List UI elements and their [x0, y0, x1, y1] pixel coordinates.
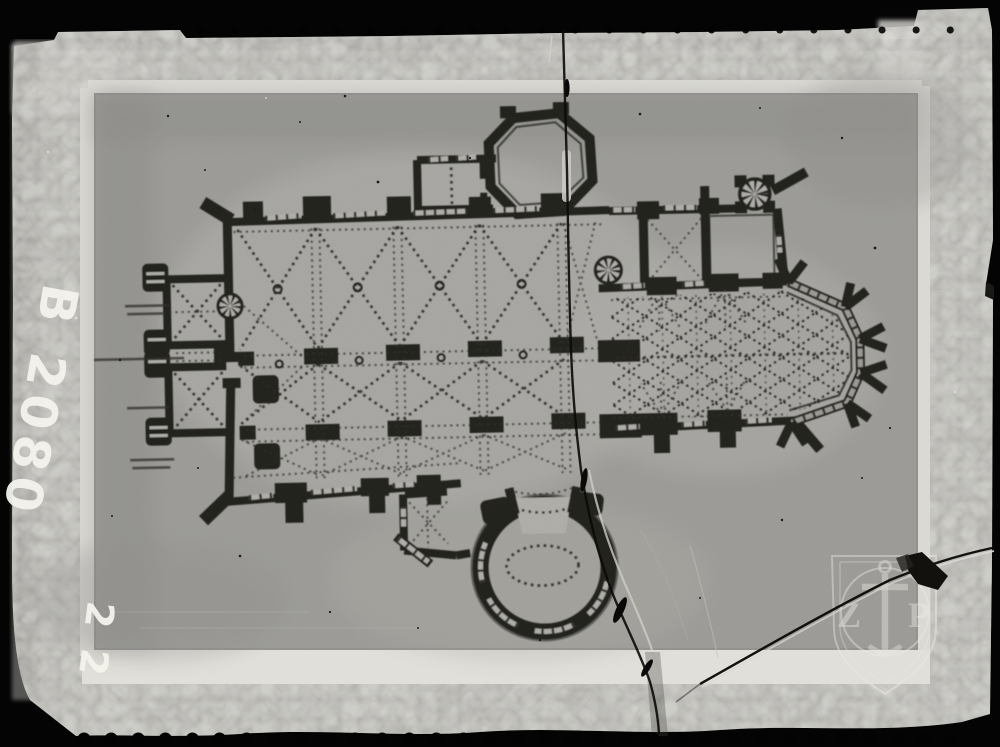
film-grain	[94, 93, 918, 650]
plate-canvas: Z P B 2080 2	[0, 0, 1000, 747]
negative-plate-scan: Z P B 2080 2	[0, 0, 1000, 747]
